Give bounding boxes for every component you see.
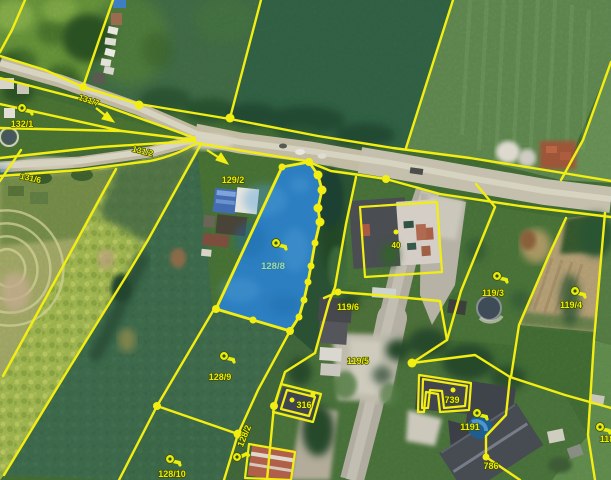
svg-text:786: 786	[483, 461, 498, 471]
svg-text:128/8: 128/8	[261, 261, 285, 272]
svg-text:316: 316	[296, 400, 311, 410]
svg-text:119/4: 119/4	[560, 300, 582, 310]
svg-text:119/5: 119/5	[347, 356, 369, 366]
svg-text:128/9: 128/9	[209, 372, 232, 382]
svg-text:739: 739	[444, 395, 459, 405]
svg-text:119/3: 119/3	[482, 288, 504, 298]
svg-text:132/1: 132/1	[11, 119, 34, 129]
svg-text:40: 40	[392, 241, 401, 250]
svg-text:128/10: 128/10	[158, 469, 186, 479]
svg-text:119/6: 119/6	[337, 302, 359, 312]
svg-text:118: 118	[600, 434, 611, 444]
svg-text:129/2: 129/2	[222, 175, 245, 185]
svg-text:1191: 1191	[460, 422, 480, 432]
